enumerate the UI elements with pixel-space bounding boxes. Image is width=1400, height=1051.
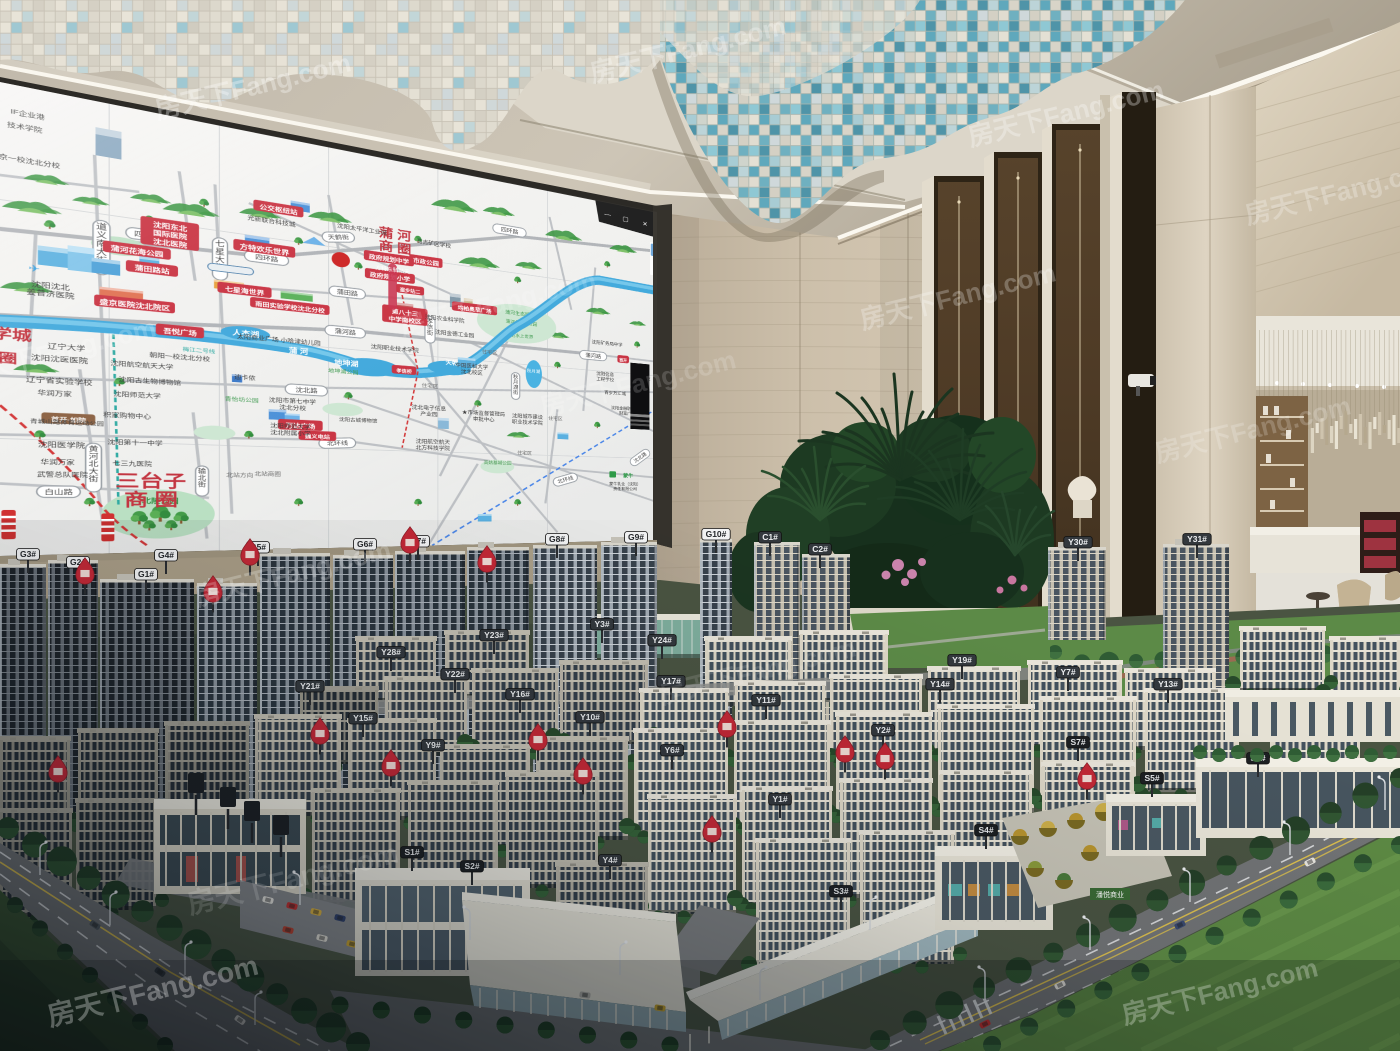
svg-text:房天下Fang.com: 房天下Fang.com	[1242, 152, 1400, 230]
svg-text:房天下Fang.com: 房天下Fang.com	[965, 74, 1167, 152]
svg-text:房天下Fang.com: 房天下Fang.com	[1152, 390, 1354, 468]
svg-text:房天下Fang.com: 房天下Fang.com	[857, 257, 1059, 335]
svg-text:房天下Fang.com: 房天下Fang.com	[152, 47, 354, 125]
svg-text:房天下Fang.com: 房天下Fang.com	[587, 10, 789, 88]
